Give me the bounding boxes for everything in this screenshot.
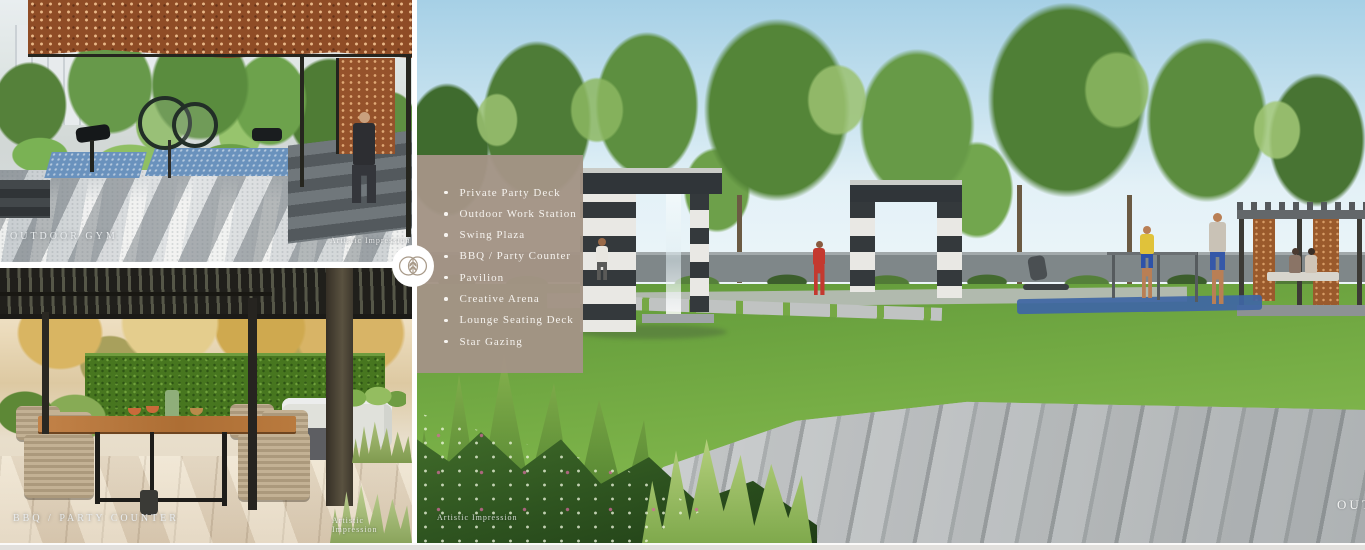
bench-cushions: [1267, 272, 1339, 281]
canopy-post: [406, 57, 411, 237]
gym-machine-post: [90, 140, 94, 172]
gym-equipment-post: [1112, 252, 1115, 298]
pergola-beam: [1237, 210, 1365, 219]
amenity-item: Swing Plaza: [444, 228, 583, 243]
corner-caption-partial: OUT: [1337, 497, 1365, 513]
dining-table: [38, 416, 296, 432]
canopy-post: [300, 57, 304, 187]
image-caption-bbq-party-counter: BBQ / PARTY COUNTER: [13, 513, 179, 524]
corten-canopy: [28, 0, 412, 58]
pergola-post: [1357, 219, 1362, 307]
person-figure-seated: [1289, 248, 1301, 273]
gym-machine: [252, 128, 282, 141]
person-figure-seated: [1305, 248, 1317, 273]
pitcher: [165, 390, 179, 417]
bullet-icon: [444, 297, 448, 301]
canopy-frame-beam: [28, 54, 412, 57]
pergola-post: [326, 268, 353, 506]
gym-equipment-post: [1195, 252, 1198, 302]
striped-portal-right-column: [937, 202, 962, 298]
bullet-icon: [444, 212, 448, 216]
striped-portal-right-lintel: [850, 180, 962, 202]
person-figure-yellow: [1140, 226, 1154, 298]
amenities-list: Private Party Deck Outdoor Work Station …: [444, 185, 583, 349]
page-bottom-strip: [0, 543, 1365, 550]
page-container: OUTDOOR GYM Artistic Impression: [0, 0, 1365, 550]
pergola-post: [248, 298, 257, 510]
gallery-image-outdoor-main: Private Party Deck Outdoor Work Station …: [417, 0, 1365, 543]
striped-portal-left-column: [690, 194, 709, 312]
striped-portal-right-column: [850, 202, 875, 292]
artist-impression-credit: Artistic Impression: [437, 513, 518, 522]
bullet-icon: [444, 233, 448, 237]
table-leg: [222, 432, 227, 506]
amenity-item: Pavilion: [444, 270, 583, 285]
table-frame: [95, 498, 227, 502]
bullet-icon: [444, 340, 448, 344]
person-figure: [596, 238, 608, 280]
brand-badge: [392, 245, 434, 287]
exercise-bike-base: [1023, 284, 1069, 290]
amenity-item: Lounge Seating Deck: [444, 313, 583, 328]
person-figure-jogger: [813, 241, 825, 295]
pergola-post: [42, 312, 49, 434]
gallery-image-bbq-party-counter: BBQ / PARTY COUNTER Artistic Impression: [0, 268, 412, 543]
striped-portal-left-lintel: [580, 168, 722, 194]
artist-impression-credit: Artistic Impression: [332, 516, 412, 534]
amenity-item: BBQ / Party Counter: [444, 249, 583, 264]
pergola-beam: [0, 292, 272, 296]
water-basin: [642, 314, 714, 323]
amenity-item: Private Party Deck: [444, 185, 583, 200]
person-figure-gray: [1209, 213, 1226, 304]
amenity-item: Star Gazing: [444, 334, 583, 349]
pergola-roof-slats: [1237, 202, 1365, 210]
bullet-icon: [444, 319, 448, 323]
corten-screen-panel: [1253, 219, 1275, 301]
amenity-item: Creative Arena: [444, 291, 583, 306]
bullet-icon: [444, 276, 448, 280]
amenities-panel: Private Party Deck Outdoor Work Station …: [417, 155, 583, 373]
table-leg: [95, 432, 100, 504]
bullet-icon: [444, 255, 448, 259]
leaf-venn-logo-icon: [396, 249, 430, 283]
amenity-item: Outdoor Work Station: [444, 206, 583, 221]
gym-equipment-post: [1157, 252, 1160, 300]
pergola-post: [1239, 219, 1244, 307]
stone-bench: [0, 180, 50, 218]
bullet-icon: [444, 191, 448, 195]
gallery-image-outdoor-gym: OUTDOOR GYM Artistic Impression: [0, 0, 412, 262]
blue-pebble-bed: [44, 152, 146, 178]
gym-spinner-post: [168, 140, 171, 178]
floor-pot: [140, 490, 158, 515]
gym-spinner-wheel: [172, 102, 218, 148]
artist-impression-credit: Artistic Impression: [330, 236, 411, 245]
image-caption-outdoor-gym: OUTDOOR GYM: [10, 231, 118, 242]
person-figure-sitting: [352, 112, 376, 203]
waterfall: [666, 194, 681, 316]
